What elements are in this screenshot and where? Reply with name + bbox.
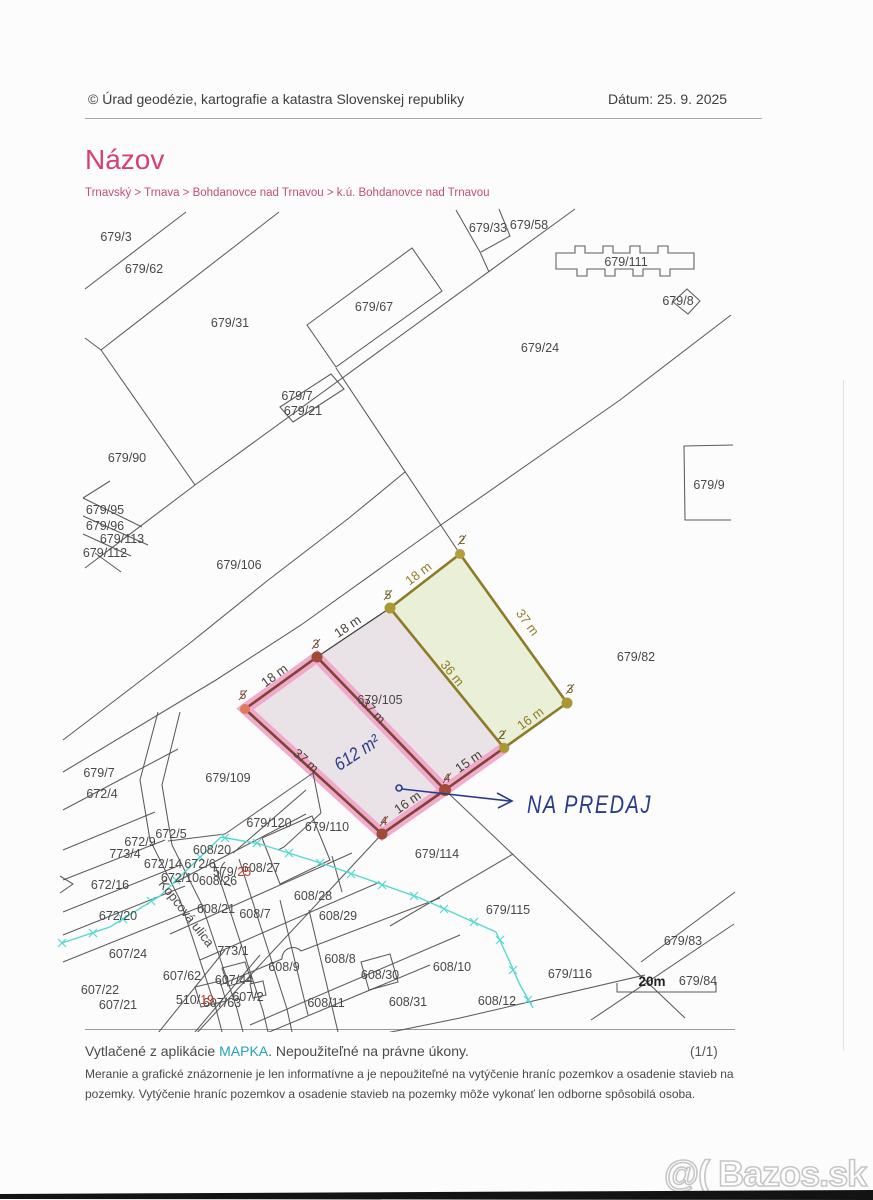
- svg-text:679/109: 679/109: [205, 771, 250, 785]
- svg-text:672/6: 672/6: [184, 857, 215, 871]
- svg-text:608/28: 608/28: [294, 889, 332, 903]
- svg-text:672/5: 672/5: [155, 827, 186, 841]
- svg-text:607/24: 607/24: [109, 947, 147, 961]
- svg-text:679/58: 679/58: [510, 218, 548, 232]
- svg-text:679/83: 679/83: [664, 934, 702, 948]
- svg-text:679/62: 679/62: [125, 262, 163, 276]
- svg-text:679/8: 679/8: [662, 294, 693, 308]
- svg-text:608/8: 608/8: [324, 952, 355, 966]
- svg-text:679/111: 679/111: [604, 255, 647, 269]
- svg-text:608/30: 608/30: [361, 968, 399, 982]
- svg-text:608/9: 608/9: [268, 960, 299, 974]
- svg-text:679/3: 679/3: [100, 230, 131, 244]
- svg-text:679/67: 679/67: [355, 300, 393, 314]
- svg-text:679/82: 679/82: [617, 650, 655, 664]
- svg-text:608/31: 608/31: [389, 995, 427, 1009]
- svg-text:679/33: 679/33: [469, 221, 507, 235]
- svg-text:608/29: 608/29: [319, 909, 357, 923]
- svg-text:608/21: 608/21: [197, 902, 235, 916]
- svg-text:679/114: 679/114: [415, 847, 459, 861]
- svg-text:608/10: 608/10: [433, 960, 471, 974]
- svg-text:607/62: 607/62: [163, 969, 201, 983]
- svg-text:672/16: 672/16: [91, 878, 129, 892]
- svg-text:672/4: 672/4: [86, 787, 117, 801]
- svg-text:679/113: 679/113: [100, 532, 144, 546]
- svg-text:773/4: 773/4: [109, 847, 140, 861]
- svg-text:608/7: 608/7: [239, 907, 270, 921]
- svg-text:608/20: 608/20: [193, 843, 231, 857]
- svg-text:607/2: 607/2: [232, 990, 263, 1004]
- svg-text:679/9: 679/9: [693, 478, 724, 492]
- svg-text:607/22: 607/22: [81, 983, 119, 997]
- svg-text:672/20: 672/20: [99, 909, 137, 923]
- svg-text:679/112: 679/112: [83, 546, 127, 560]
- svg-text:679/84: 679/84: [679, 974, 717, 988]
- svg-text:679/95: 679/95: [86, 503, 124, 517]
- svg-text:679/116: 679/116: [548, 967, 592, 981]
- svg-text:679/110: 679/110: [305, 820, 349, 834]
- svg-text:773/1: 773/1: [217, 944, 248, 958]
- svg-text:672/14: 672/14: [144, 857, 182, 871]
- svg-text:608/11: 608/11: [307, 996, 344, 1010]
- svg-text:679/24: 679/24: [521, 341, 559, 355]
- svg-text:608/12: 608/12: [478, 994, 516, 1008]
- svg-text:679/115: 679/115: [486, 903, 530, 917]
- svg-text:679/96: 679/96: [86, 519, 124, 533]
- svg-text:510/19: 510/19: [176, 993, 214, 1007]
- svg-text:679/7: 679/7: [83, 766, 114, 780]
- svg-text:679/21: 679/21: [284, 404, 322, 418]
- svg-text:579/25: 579/25: [213, 865, 251, 879]
- svg-text:679/106: 679/106: [216, 558, 261, 572]
- svg-text:679/90: 679/90: [108, 451, 146, 465]
- svg-text:20m: 20m: [638, 974, 665, 989]
- svg-text:607/44: 607/44: [215, 973, 253, 987]
- svg-text:679/31: 679/31: [211, 316, 249, 330]
- svg-text:NA PREDAJ: NA PREDAJ: [527, 791, 652, 819]
- svg-text:679/120: 679/120: [246, 816, 291, 830]
- svg-text:679/7: 679/7: [281, 389, 312, 403]
- svg-text:607/21: 607/21: [99, 998, 137, 1012]
